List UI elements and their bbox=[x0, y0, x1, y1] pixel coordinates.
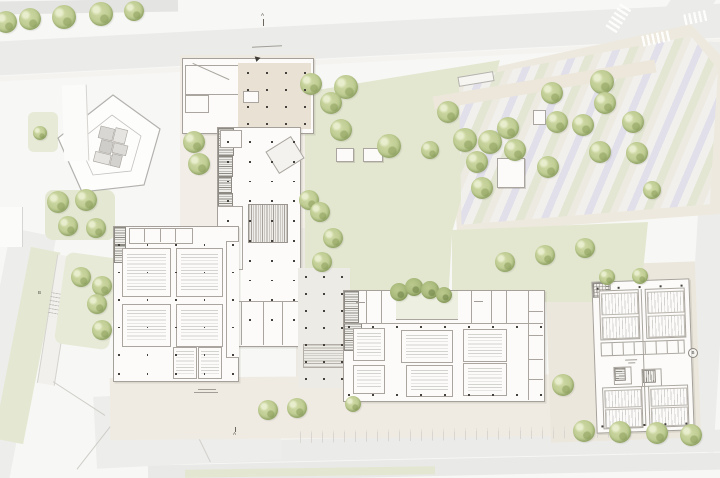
ramp-steps bbox=[303, 344, 345, 368]
hall-striped-floor bbox=[176, 351, 194, 375]
entrance-arrow bbox=[253, 56, 260, 62]
service-room bbox=[185, 95, 209, 113]
column-dot bbox=[147, 354, 149, 356]
section-marker-b-right: B bbox=[688, 348, 698, 358]
main-stair-steps bbox=[248, 204, 288, 243]
column-dot bbox=[249, 299, 251, 301]
column-dot bbox=[249, 161, 251, 163]
section-marker-a-top: A bbox=[261, 13, 264, 18]
column-dot bbox=[643, 424, 645, 426]
column-dot bbox=[249, 141, 251, 143]
stair-room bbox=[613, 366, 632, 385]
column-dot bbox=[305, 327, 307, 329]
column-dot bbox=[249, 260, 251, 262]
column-dot bbox=[175, 244, 177, 246]
column-dot bbox=[271, 220, 273, 222]
column-dot bbox=[204, 244, 206, 246]
column-dot bbox=[304, 89, 306, 91]
column-dot bbox=[204, 373, 206, 375]
column-dot bbox=[247, 72, 249, 74]
column-dot bbox=[227, 181, 229, 183]
column-dot bbox=[247, 123, 249, 125]
column-dot bbox=[271, 141, 273, 143]
column-dot bbox=[227, 161, 229, 163]
column-dot bbox=[232, 354, 234, 356]
column-dot bbox=[285, 123, 287, 125]
stair-core bbox=[218, 156, 233, 177]
column-dot bbox=[147, 327, 149, 329]
hall-striped-floor bbox=[650, 387, 688, 406]
column-dot bbox=[664, 423, 666, 425]
room-label-mark bbox=[628, 362, 635, 363]
column-dot bbox=[175, 272, 177, 274]
parking-stripe-field bbox=[448, 28, 718, 233]
section-tick bbox=[263, 19, 264, 26]
hall-striped-floor bbox=[357, 370, 381, 389]
wall-line bbox=[241, 301, 242, 345]
stair-core bbox=[218, 177, 232, 193]
column-dot bbox=[293, 240, 295, 242]
column-dot bbox=[175, 354, 177, 356]
hall-striped-floor bbox=[181, 254, 218, 291]
column-dot bbox=[118, 373, 120, 375]
corner-road-strip bbox=[0, 0, 178, 15]
column-dot bbox=[204, 272, 206, 274]
entry-hall-room bbox=[185, 65, 239, 95]
wall-line bbox=[506, 291, 507, 323]
column-dot bbox=[232, 272, 234, 274]
column-dot bbox=[622, 425, 624, 427]
column-dot bbox=[293, 260, 295, 262]
column-dot bbox=[147, 299, 149, 301]
existing-slab-building bbox=[62, 85, 90, 162]
parking-hut bbox=[533, 110, 546, 125]
column-dot bbox=[305, 361, 307, 363]
column-dot bbox=[266, 72, 268, 74]
site-plan-canvas: A A B B bbox=[0, 0, 720, 478]
wall-line bbox=[263, 301, 264, 345]
column-dot bbox=[266, 123, 268, 125]
column-dot bbox=[147, 272, 149, 274]
column-dot bbox=[271, 299, 273, 301]
column-dot bbox=[118, 327, 120, 329]
column-dot bbox=[249, 220, 251, 222]
column-dot bbox=[348, 326, 350, 328]
column-dot bbox=[372, 394, 374, 396]
column-dot bbox=[305, 276, 307, 278]
column-dot bbox=[118, 354, 120, 356]
hall bbox=[463, 329, 507, 362]
wall-line bbox=[491, 291, 492, 323]
hall bbox=[406, 365, 453, 397]
northwest-lawn-patch bbox=[28, 112, 58, 152]
hall bbox=[176, 248, 223, 297]
column-dot bbox=[304, 123, 306, 125]
existing-slab-building bbox=[0, 207, 23, 247]
column-dot bbox=[232, 373, 234, 375]
column-dot bbox=[118, 272, 120, 274]
hall-striped-floor bbox=[406, 335, 448, 358]
column-dot bbox=[204, 327, 206, 329]
hall-striped-floor bbox=[647, 291, 685, 314]
column-dot bbox=[685, 422, 687, 424]
column-dot bbox=[285, 72, 287, 74]
column-dot bbox=[323, 310, 325, 312]
hall-striped-floor bbox=[181, 310, 218, 341]
column-dot bbox=[118, 244, 120, 246]
hall bbox=[401, 330, 453, 363]
hall-striped-floor bbox=[601, 292, 639, 315]
wall-line bbox=[366, 291, 367, 323]
column-dot bbox=[304, 72, 306, 74]
column-dot bbox=[147, 244, 149, 246]
column-dot bbox=[227, 220, 229, 222]
west-lawn-lower bbox=[54, 252, 121, 351]
column-dot bbox=[468, 394, 470, 396]
wall-line bbox=[175, 228, 176, 242]
column-dot bbox=[323, 276, 325, 278]
column-dot bbox=[271, 319, 273, 321]
column-dot bbox=[147, 373, 149, 375]
column-dot bbox=[249, 240, 251, 242]
column-dot bbox=[232, 327, 234, 329]
column-dot bbox=[597, 288, 599, 290]
column-dot bbox=[305, 344, 307, 346]
hall-striped-floor bbox=[648, 315, 686, 338]
hall bbox=[353, 365, 385, 394]
column-dot bbox=[247, 89, 249, 91]
column-dot bbox=[249, 319, 251, 321]
column-dot bbox=[444, 326, 446, 328]
wall-line bbox=[528, 335, 543, 336]
column-dot bbox=[266, 89, 268, 91]
column-dot bbox=[249, 181, 251, 183]
hall-striped-floor bbox=[127, 310, 166, 341]
column-dot bbox=[175, 299, 177, 301]
inner-courtyard bbox=[396, 291, 458, 320]
hall bbox=[645, 288, 687, 339]
column-dot bbox=[420, 394, 422, 396]
hall bbox=[599, 289, 641, 340]
hall-striped-floor bbox=[357, 333, 381, 356]
column-dot bbox=[305, 378, 307, 380]
column-dot bbox=[540, 326, 542, 328]
column-dot bbox=[271, 280, 273, 282]
column-dot bbox=[285, 106, 287, 108]
column-dot bbox=[341, 276, 343, 278]
column-dot bbox=[681, 285, 683, 287]
hall bbox=[176, 304, 223, 347]
column-dot bbox=[323, 361, 325, 363]
south-hall bbox=[198, 347, 222, 379]
column-dot bbox=[271, 260, 273, 262]
column-dot bbox=[118, 299, 120, 301]
column-dot bbox=[232, 299, 234, 301]
column-dot bbox=[420, 326, 422, 328]
room-label-mark bbox=[474, 301, 483, 302]
column-dot bbox=[271, 240, 273, 242]
column-dot bbox=[323, 344, 325, 346]
column-dot bbox=[227, 141, 229, 143]
section-marker-a-bottom: A bbox=[233, 432, 236, 437]
column-dot bbox=[305, 293, 307, 295]
column-dot bbox=[293, 280, 295, 282]
north-service-rooms bbox=[129, 228, 193, 244]
column-dot bbox=[232, 244, 234, 246]
hall bbox=[122, 304, 171, 347]
section-marker-b-left: B bbox=[38, 291, 41, 296]
room-label-mark bbox=[356, 302, 365, 303]
hall-striped-floor bbox=[468, 334, 502, 357]
column-dot bbox=[227, 200, 229, 202]
corridor-wall bbox=[528, 291, 529, 400]
room-label-mark bbox=[625, 359, 637, 360]
column-dot bbox=[293, 319, 295, 321]
column-dot bbox=[516, 326, 518, 328]
hall-striped-floor bbox=[651, 406, 689, 426]
small-rooms bbox=[220, 130, 242, 148]
parking-pavilion bbox=[497, 158, 525, 188]
column-dot bbox=[468, 326, 470, 328]
building-east-workshops bbox=[591, 278, 694, 433]
terrace-kiosk bbox=[243, 91, 259, 103]
column-dot bbox=[293, 299, 295, 301]
column-dot bbox=[271, 181, 273, 183]
column-dot bbox=[249, 200, 251, 202]
wall-line bbox=[528, 379, 543, 380]
column-dot bbox=[492, 394, 494, 396]
hall bbox=[602, 386, 643, 429]
column-dot bbox=[293, 141, 295, 143]
building-south-labs bbox=[343, 290, 545, 402]
column-dot bbox=[175, 373, 177, 375]
column-dot bbox=[266, 106, 268, 108]
hall bbox=[463, 363, 507, 396]
column-dot bbox=[247, 106, 249, 108]
column-dot bbox=[249, 280, 251, 282]
column-dot bbox=[293, 161, 295, 163]
column-dot bbox=[492, 326, 494, 328]
column-dot bbox=[323, 327, 325, 329]
column-dot bbox=[516, 394, 518, 396]
wall-line bbox=[528, 359, 543, 360]
column-dot bbox=[540, 394, 542, 396]
column-dot bbox=[175, 327, 177, 329]
stair-core bbox=[114, 227, 126, 245]
column-dot bbox=[601, 425, 603, 427]
column-dot bbox=[639, 286, 641, 288]
wall-line bbox=[528, 311, 543, 312]
hall bbox=[648, 384, 689, 427]
bus-stop-label-mark bbox=[194, 392, 218, 393]
section-tick bbox=[235, 427, 236, 432]
column-dot bbox=[323, 378, 325, 380]
wall-line bbox=[471, 291, 472, 323]
column-dot bbox=[204, 354, 206, 356]
wall-line bbox=[144, 228, 145, 242]
wall-line bbox=[160, 228, 161, 242]
bus-stop-label-mark bbox=[198, 389, 216, 390]
column-dot bbox=[396, 326, 398, 328]
column-dot bbox=[348, 394, 350, 396]
hall-striped-floor bbox=[602, 316, 640, 339]
lawn-pavilion bbox=[363, 148, 383, 162]
column-dot bbox=[372, 326, 374, 328]
hall-striped-floor bbox=[468, 368, 502, 391]
column-dot bbox=[304, 106, 306, 108]
building-west-workshops bbox=[113, 226, 239, 382]
hall-striped-floor bbox=[604, 389, 642, 408]
column-dot bbox=[293, 181, 295, 183]
column-dot bbox=[271, 161, 273, 163]
lawn-pavilion bbox=[336, 148, 354, 162]
column-dot bbox=[305, 310, 307, 312]
column-dot bbox=[396, 394, 398, 396]
column-dot bbox=[285, 89, 287, 91]
wall-line bbox=[282, 301, 283, 345]
column-dot bbox=[660, 285, 662, 287]
column-dot bbox=[293, 220, 295, 222]
column-dot bbox=[293, 200, 295, 202]
hall bbox=[353, 328, 385, 361]
hall-striped-floor bbox=[411, 370, 448, 392]
column-dot bbox=[204, 299, 206, 301]
wall-line bbox=[381, 291, 382, 323]
column-dot bbox=[323, 293, 325, 295]
column-dot bbox=[618, 287, 620, 289]
column-dot bbox=[444, 394, 446, 396]
column-dot bbox=[271, 200, 273, 202]
